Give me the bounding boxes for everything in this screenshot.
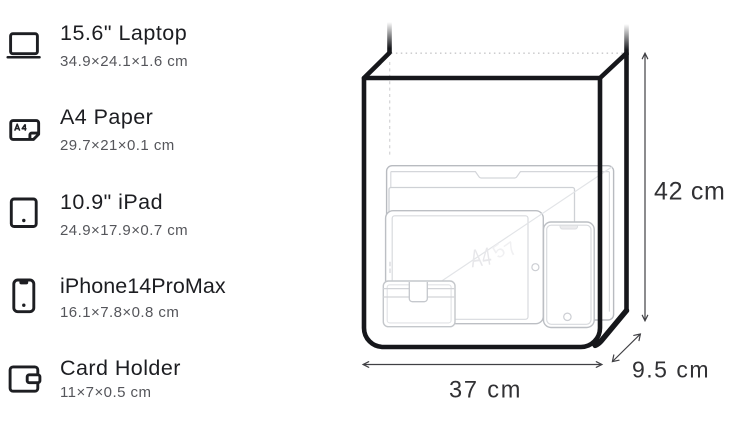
- svg-text:37 cm: 37 cm: [449, 378, 522, 404]
- svg-text:42 cm: 42 cm: [654, 178, 726, 206]
- svg-text:9.5 cm: 9.5 cm: [632, 356, 710, 382]
